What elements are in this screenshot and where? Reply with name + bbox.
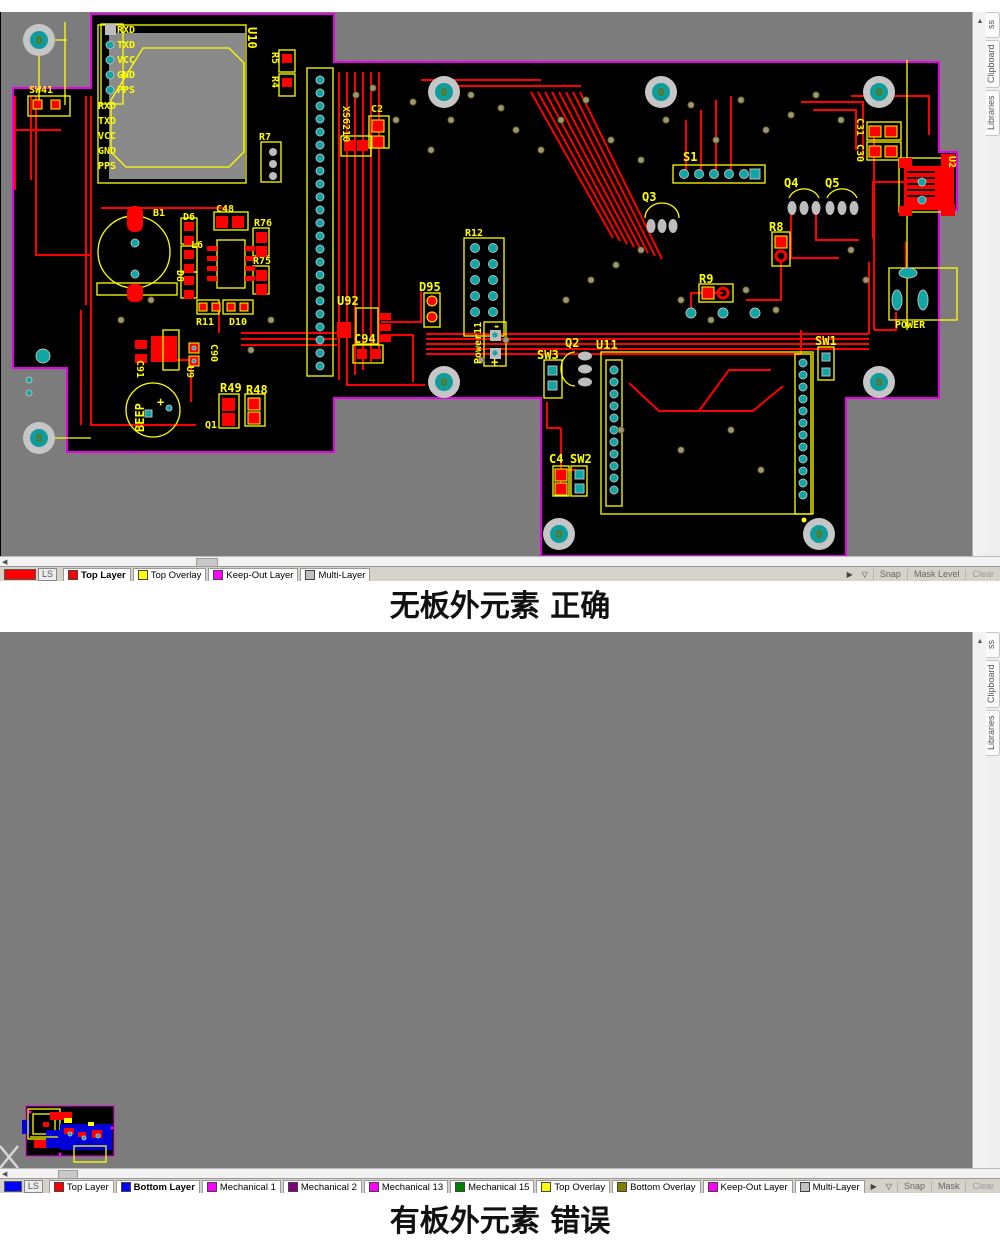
layer-tab-label: Multi-Layer — [318, 570, 365, 581]
hole-designator: 0 — [556, 528, 563, 541]
designator-label: VCC — [98, 131, 116, 142]
designator-label: U10 — [245, 27, 259, 49]
layer-tab-bottom-overlay[interactable]: Bottom Overlay — [612, 1180, 700, 1194]
hole-designator: 0 — [816, 528, 823, 541]
mask-level-button[interactable]: Mask Level — [907, 569, 966, 580]
layer-color-icon — [800, 1182, 810, 1192]
designator-label: Power11 — [473, 322, 484, 364]
designator-label: R9 — [699, 272, 713, 286]
layer-color-icon — [455, 1182, 465, 1192]
pick-mode-icon[interactable]: ▶ — [843, 570, 858, 579]
layer-tab-keep-out[interactable]: Keep-Out Layer — [208, 568, 298, 582]
layer-tab-top-overlay[interactable]: Top Overlay — [536, 1180, 610, 1194]
designator-label: POWER — [895, 320, 926, 331]
side-panel-tabs-1: ss Clipboard Libraries — [986, 12, 1000, 556]
layer-tab-label: Top Layer — [67, 1182, 109, 1193]
designator-label: C90 — [208, 344, 219, 362]
designator-label: B1 — [153, 208, 165, 219]
page: 0 0 0 0 0 0 0 0 0 SW41 RXD TXD VCC GND P… — [0, 0, 1000, 1254]
layer-tab-label: Top Layer — [81, 570, 126, 581]
designator-label: TXD — [98, 116, 116, 127]
layer-tab-top-layer[interactable]: Top Layer — [63, 568, 131, 582]
designator-label: R49 — [220, 381, 242, 395]
designator-label: L6 — [191, 240, 203, 251]
hole-designator: 0 — [441, 86, 448, 99]
designator-label: PPS — [117, 85, 135, 96]
designator-label: C30 — [854, 144, 865, 162]
off-board-mini-pcb — [22, 1106, 114, 1162]
designator-label: D95 — [419, 280, 441, 294]
layer-tab-label: Top Overlay — [554, 1182, 605, 1193]
hole-designator: 0 — [441, 376, 448, 389]
layer-color-icon — [207, 1182, 217, 1192]
designator-label: U9 — [184, 366, 195, 378]
snap-button[interactable]: Snap — [897, 1181, 931, 1192]
designator-label: + — [157, 395, 164, 409]
designator-label: Q5 — [825, 176, 839, 190]
designator-label: GND — [98, 146, 116, 157]
designator-label: R75 — [253, 256, 271, 267]
layer-tab-label: Keep-Out Layer — [226, 570, 293, 581]
designator-label: Q2 — [565, 336, 579, 350]
designator-label: GND — [117, 70, 135, 81]
designator-label: RXD — [117, 25, 135, 36]
designator-label: R8 — [769, 220, 783, 234]
layer-tab-bar-2: LS Top Layer Bottom Layer Mechanical 1 M… — [0, 1178, 1000, 1194]
designator-label: SW1 — [815, 334, 837, 348]
layer-tab-label: Multi-Layer — [813, 1182, 860, 1193]
active-layer-swatch — [4, 1181, 22, 1192]
layer-tab-bar-1: LS Top Layer Top Overlay Keep-Out Layer … — [0, 566, 1000, 582]
layer-tab-label: Bottom Overlay — [630, 1182, 695, 1193]
filter-icon[interactable]: ▽ — [858, 570, 873, 579]
designator-label: C94 — [354, 332, 376, 346]
caption-error: 有板外元素 错误 — [0, 1193, 1000, 1254]
designator-label: D8 — [174, 270, 185, 282]
vertical-scrollbar-1[interactable]: ▲ — [972, 12, 987, 556]
layer-color-icon — [54, 1182, 64, 1192]
layer-tab-top-overlay[interactable]: Top Overlay — [133, 568, 207, 582]
layer-tab-mechanical-1[interactable]: Mechanical 1 — [202, 1180, 281, 1194]
side-tab-clipped[interactable]: ss — [986, 12, 1000, 38]
scroll-up-arrow[interactable]: ▲ — [973, 638, 987, 645]
designator-label: D6 — [183, 212, 195, 223]
designator-label: R12 — [465, 228, 483, 239]
layer-color-icon — [369, 1182, 379, 1192]
layer-tab-label: Keep-Out Layer — [721, 1182, 788, 1193]
scroll-up-arrow[interactable]: ▲ — [973, 18, 987, 25]
hole-designator: 0 — [36, 432, 43, 445]
clear-button[interactable]: Clear — [965, 1181, 1000, 1192]
side-panel-tabs-2: ss Clipboard Libraries — [986, 632, 1000, 1168]
pcb-board-bottom-view — [0, 632, 972, 1168]
layer-tab-multi-layer[interactable]: Multi-Layer — [300, 568, 370, 582]
layer-tab-mechanical-2[interactable]: Mechanical 2 — [283, 1180, 362, 1194]
layer-color-icon — [305, 570, 315, 580]
layer-tab-mechanical-15[interactable]: Mechanical 15 — [450, 1180, 534, 1194]
hole-designator: 0 — [876, 86, 883, 99]
designator-label: R11 — [196, 317, 214, 328]
designator-label: BEEP — [133, 403, 147, 432]
designator-label: R48 — [246, 383, 268, 397]
side-tab-libraries[interactable]: Libraries — [986, 90, 1000, 136]
layer-tab-label: Mechanical 15 — [468, 1182, 529, 1193]
designator-label: S1 — [683, 150, 697, 164]
designator-label: TXD — [117, 40, 135, 51]
designator-label: C31 — [854, 118, 865, 136]
layer-color-icon — [138, 570, 148, 580]
active-layer-swatch — [4, 569, 36, 580]
layer-tab-label: Mechanical 1 — [220, 1182, 276, 1193]
layer-tab-bottom-layer[interactable]: Bottom Layer — [116, 1180, 200, 1194]
designator-label: Q4 — [784, 176, 798, 190]
designator-label: Q3 — [642, 190, 656, 204]
designator-label: C91 — [134, 360, 145, 378]
side-tab-clipboard[interactable]: Clipboard — [986, 660, 1000, 708]
vertical-scrollbar-2[interactable]: ▲ — [972, 632, 987, 1168]
layer-color-icon — [121, 1182, 131, 1192]
designator-label: + — [491, 355, 498, 369]
origin-marker — [0, 1146, 18, 1168]
layer-tab-keep-out[interactable]: Keep-Out Layer — [703, 1180, 793, 1194]
layer-tab-top-layer[interactable]: Top Layer — [49, 1180, 114, 1194]
designator-label: PPS — [98, 161, 116, 172]
designator-label: C48 — [216, 204, 234, 215]
snap-button[interactable]: Snap — [873, 569, 907, 580]
scroll-left-arrow[interactable]: ◀ — [2, 1170, 7, 1178]
layer-color-icon — [617, 1182, 627, 1192]
designator-label: C4 — [549, 452, 563, 466]
layer-color-icon — [68, 570, 78, 580]
designator-label: R4 — [269, 76, 280, 88]
pick-mode-icon[interactable]: ▶ — [867, 1182, 882, 1191]
designator-label: VCC — [117, 55, 135, 66]
designator-label: U11 — [596, 338, 618, 352]
layer-tab-label: Bottom Layer — [134, 1182, 195, 1193]
layer-set-indicator[interactable]: LS — [38, 568, 57, 581]
layer-tab-label: Mechanical 13 — [382, 1182, 443, 1193]
layer-color-icon — [213, 570, 223, 580]
designator-label: SW2 — [570, 452, 592, 466]
designator-label: D10 — [229, 317, 247, 328]
filter-icon[interactable]: ▽ — [882, 1182, 897, 1191]
layer-set-indicator[interactable]: LS — [24, 1180, 43, 1193]
hole-designator: 0 — [658, 86, 665, 99]
designator-label: Q1 — [205, 420, 217, 431]
designator-label: U92 — [337, 294, 359, 308]
layer-color-icon — [708, 1182, 718, 1192]
hole-designator: 0 — [36, 34, 43, 47]
side-tab-clipboard[interactable]: Clipboard — [986, 40, 1000, 88]
layer-tab-label: Top Overlay — [151, 570, 202, 581]
designator-label: SW3 — [537, 348, 559, 362]
designator-label: C2 — [371, 104, 383, 115]
caption-correct: 无板外元素 正确 — [0, 581, 1000, 632]
pcb-editor-canvas-1[interactable]: 0 0 0 0 0 0 0 0 0 SW41 RXD TXD VCC GND P… — [0, 12, 973, 556]
designator-label: XS6210 — [340, 106, 351, 142]
layer-tab-label: Mechanical 2 — [301, 1182, 357, 1193]
hole-designator: 0 — [876, 376, 883, 389]
side-tab-libraries[interactable]: Libraries — [986, 710, 1000, 756]
pcb-board-top-view: 0 0 0 0 0 0 0 0 0 SW41 RXD TXD VCC GND P… — [1, 12, 973, 556]
designator-label: R7 — [259, 132, 271, 143]
designator-label: R76 — [254, 218, 272, 229]
layer-tab-multi-layer[interactable]: Multi-Layer — [795, 1180, 865, 1194]
scroll-left-arrow[interactable]: ◀ — [2, 558, 7, 566]
layer-color-icon — [288, 1182, 298, 1192]
designator-label: - — [493, 319, 500, 333]
designator-label: RXD — [98, 101, 116, 112]
layer-bar-tools: ▶ ▽ Snap Mask Level Clear — [867, 1180, 1000, 1193]
clear-button[interactable]: Clear — [965, 569, 1000, 580]
layer-bar-tools: ▶ ▽ Snap Mask Level Clear — [843, 568, 1000, 581]
layer-color-icon — [541, 1182, 551, 1192]
designator-label: U2 — [946, 156, 957, 168]
pcb-editor-canvas-2[interactable] — [0, 632, 972, 1168]
designator-label: SW41 — [29, 85, 53, 96]
mask-level-button[interactable]: Mask Level — [931, 1181, 966, 1192]
layer-tab-mechanical-13[interactable]: Mechanical 13 — [364, 1180, 448, 1194]
side-tab-clipped[interactable]: ss — [986, 632, 1000, 658]
designator-label: R5 — [269, 52, 280, 64]
